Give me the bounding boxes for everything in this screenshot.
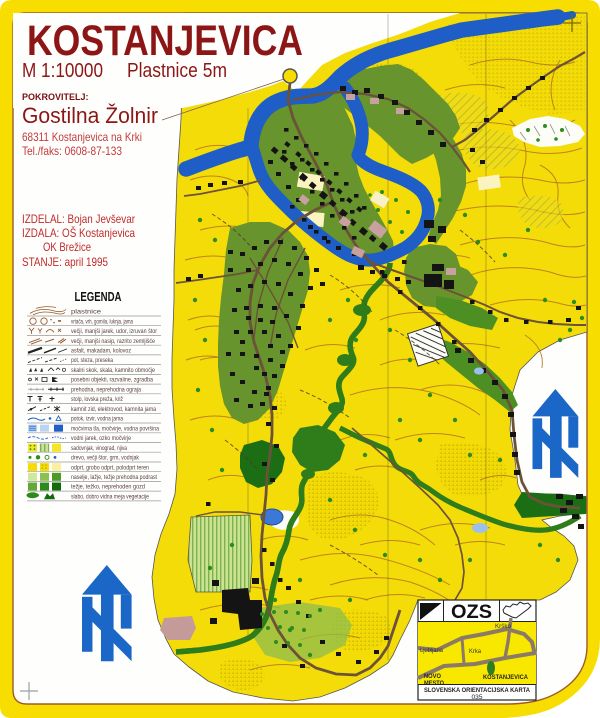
svg-text:skalni skok, skala, kamnito ob: skalni skok, skala, kamnito območje xyxy=(71,367,155,374)
svg-text:Ljubljana: Ljubljana xyxy=(420,648,444,654)
svg-text:MESTO: MESTO xyxy=(424,680,444,687)
svg-text:sadovnjak, vinograd, njiva: sadovnjak, vinograd, njiva xyxy=(71,445,127,452)
svg-text:Gostilna Žolnir: Gostilna Žolnir xyxy=(22,103,158,128)
svg-text:KOSTANJEVICA: KOSTANJEVICA xyxy=(27,17,303,65)
svg-text:prehodna, neprehodna ograja: prehodna, neprehodna ograja xyxy=(71,386,141,393)
svg-text:težje, težko, neprehoden gozd: težje, težko, neprehoden gozd xyxy=(71,484,145,491)
svg-text:slabo, dobro vidna meja vegeta: slabo, dobro vidna meja vegetacije xyxy=(71,494,149,501)
svg-text:večji, manjši jarek, udor, izr: večji, manjši jarek, udor, izruvan štor xyxy=(71,328,157,335)
svg-text:OZS: OZS xyxy=(451,602,492,623)
svg-text:Tel./faks: 0608-87-133: Tel./faks: 0608-87-133 xyxy=(22,144,122,158)
svg-text:NOVO: NOVO xyxy=(424,673,441,680)
svg-text:Plastnice 5m: Plastnice 5m xyxy=(127,60,227,82)
svg-text:035: 035 xyxy=(471,694,482,701)
svg-text:vrtača, vrh, gomila, luknja, j: vrtača, vrh, gomila, luknja, jama xyxy=(71,318,133,325)
svg-text:68311 Kostanjevica na Krki: 68311 Kostanjevica na Krki xyxy=(22,130,142,144)
svg-text:POKROVITELJ:: POKROVITELJ: xyxy=(22,92,89,102)
svg-text:posebni objekti, razvaline, zg: posebni objekti, razvaline, zgradba xyxy=(71,377,153,384)
svg-text:potok, izvir, vodna jama: potok, izvir, vodna jama xyxy=(71,416,123,423)
svg-text:IZDELAL: Bojan Jevševar: IZDELAL: Bojan Jevševar xyxy=(22,212,135,226)
svg-text:SLOVENSKA ORIENTACIJSKA KARTA: SLOVENSKA ORIENTACIJSKA KARTA xyxy=(424,687,530,694)
svg-text:Krka: Krka xyxy=(469,649,482,655)
svg-text:pot, steza, preseka: pot, steza, preseka xyxy=(71,357,113,364)
svg-text:vodni jarek, ozko močvirje: vodni jarek, ozko močvirje xyxy=(71,435,131,442)
svg-text:IZDALA: OŠ Kostanjevica: IZDALA: OŠ Kostanjevica xyxy=(22,225,135,240)
svg-text:Krško: Krško xyxy=(495,624,512,630)
svg-text:stolp, lovska preža, križ: stolp, lovska preža, križ xyxy=(71,396,123,403)
svg-text:drevo, večji štor, grm, vodnja: drevo, večji štor, grm, vodnjak xyxy=(71,455,140,462)
svg-text:LEGENDA: LEGENDA xyxy=(75,290,122,304)
svg-text:KOSTANJEVICA: KOSTANJEVICA xyxy=(483,674,528,681)
svg-text:OK Brežice: OK Brežice xyxy=(43,240,91,254)
svg-text:odprt, grobo odprt, polodprt t: odprt, grobo odprt, polodprt teren xyxy=(71,464,149,471)
svg-text:močvirna tla, močvirje, vodna: močvirna tla, močvirje, vodna površina xyxy=(71,425,159,432)
svg-text:kamnit zid, elektrovod, kamnit: kamnit zid, elektrovod, kamnita jama xyxy=(71,406,156,413)
svg-text:asfalt, makadam, kolovoz: asfalt, makadam, kolovoz xyxy=(71,348,131,355)
svg-text:naselje, lažje, težje prehodna: naselje, lažje, težje prehodna podrast xyxy=(71,474,157,481)
svg-text:M 1:10000: M 1:10000 xyxy=(22,60,103,82)
svg-text:večji, manjši nasip, razrito z: večji, manjši nasip, razrito zemljišče xyxy=(71,338,155,345)
svg-text:plastnice: plastnice xyxy=(71,309,102,316)
svg-text:STANJE: april 1995: STANJE: april 1995 xyxy=(22,255,108,269)
